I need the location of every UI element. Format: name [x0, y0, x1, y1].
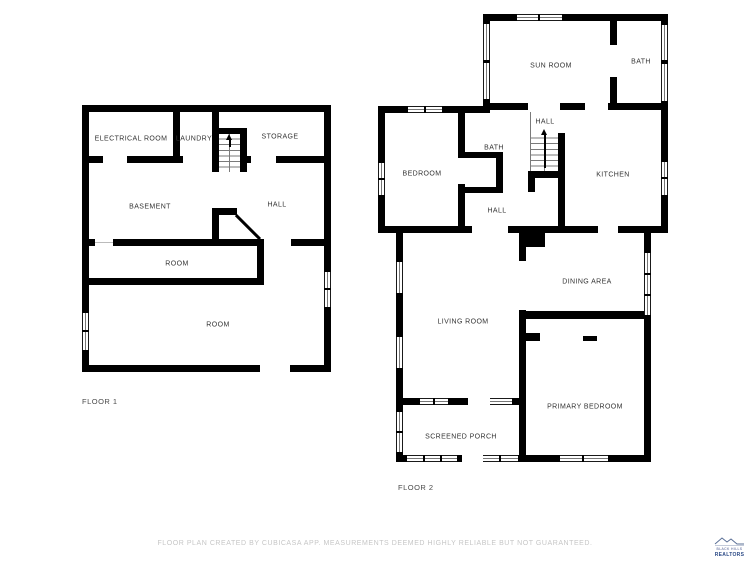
window-divider	[644, 294, 651, 296]
wall	[396, 455, 407, 462]
wall	[528, 178, 535, 192]
window-divider	[324, 288, 331, 290]
floor-2-title: FLOOR 2	[398, 483, 434, 492]
logo-line2: REALTORS	[715, 552, 745, 558]
door-leaf	[235, 214, 261, 240]
wall	[558, 133, 565, 233]
wall	[618, 226, 668, 233]
room-label-screened-porch: SCREENED PORCH	[425, 434, 497, 441]
wall	[240, 134, 247, 172]
room-label-dining-area: DINING AREA	[562, 279, 612, 286]
wall	[82, 156, 103, 163]
window-divider	[483, 60, 490, 63]
window	[396, 262, 403, 293]
window-divider	[499, 455, 501, 462]
window-divider	[423, 455, 425, 462]
room-label-hall-upper: HALL	[535, 119, 554, 126]
window-divider	[433, 398, 435, 405]
wall	[247, 156, 251, 163]
wall	[82, 278, 263, 285]
wall	[448, 398, 468, 405]
room-label-primary-bedroom: PRIMARY BEDROOM	[547, 404, 623, 411]
window-divider	[582, 455, 584, 462]
window-divider	[378, 178, 385, 180]
window-divider	[644, 273, 651, 275]
room-label-room-middle: ROOM	[165, 261, 188, 268]
window-divider	[396, 431, 403, 433]
room-label-hall-f1: HALL	[267, 202, 286, 209]
stairs-arrow-stem	[229, 139, 231, 147]
window	[407, 455, 457, 462]
room-label-kitchen: KITCHEN	[596, 172, 630, 179]
wall	[82, 365, 260, 372]
wall	[458, 106, 465, 158]
wall	[518, 455, 560, 462]
wall	[212, 105, 219, 172]
room-label-bedroom: BEDROOM	[403, 171, 442, 178]
wall	[560, 103, 585, 110]
floor-plan-page: ELECTRICAL ROOM LAUNDRY STORAGE BASEMENT…	[0, 0, 750, 563]
room-label-bath-upper: BATH	[631, 59, 651, 66]
room-label-electrical-room: ELECTRICAL ROOM	[95, 136, 168, 143]
room-label-basement: BASEMENT	[129, 204, 171, 211]
wall	[608, 455, 651, 462]
room-label-sun-room: SUN ROOM	[530, 63, 572, 70]
wall	[324, 105, 331, 372]
closet-door-marker	[583, 336, 597, 341]
wall	[512, 398, 519, 405]
window	[560, 455, 608, 462]
mountain-logo-icon: BLACK HILLS REALTORS	[711, 534, 749, 560]
window-divider	[440, 455, 442, 462]
wall	[457, 455, 462, 462]
floor-1-title: FLOOR 1	[82, 397, 118, 406]
window	[396, 337, 403, 368]
wall	[212, 208, 237, 215]
wall	[276, 156, 331, 163]
wall	[82, 239, 95, 246]
window-divider	[661, 60, 668, 64]
room-label-room-lower: ROOM	[206, 322, 229, 329]
window-divider	[424, 106, 426, 113]
window-divider	[82, 330, 89, 332]
wall	[519, 310, 526, 462]
closet-wall	[526, 333, 540, 341]
wall	[396, 398, 420, 405]
stairs-arrow-stem	[544, 134, 546, 168]
window-divider	[661, 177, 668, 179]
room-label-hall-lower: HALL	[487, 208, 506, 215]
wall	[82, 105, 331, 112]
cased-opening	[95, 239, 113, 246]
window	[644, 253, 651, 315]
wall	[291, 239, 324, 246]
wall	[173, 105, 180, 163]
window	[490, 398, 512, 405]
wall	[528, 171, 565, 178]
wall	[519, 226, 526, 261]
wall	[290, 365, 331, 372]
wall	[519, 311, 651, 319]
room-label-laundry: LAUNDRY	[176, 136, 212, 143]
wall	[610, 14, 617, 45]
disclaimer-text: FLOOR PLAN CREATED BY CUBICASA APP. MEAS…	[0, 540, 750, 547]
room-label-storage: STORAGE	[262, 134, 299, 141]
realtor-logo: BLACK HILLS REALTORS	[711, 534, 749, 560]
wall	[608, 103, 668, 110]
window-divider	[538, 14, 540, 21]
wall	[483, 14, 668, 21]
wall	[127, 156, 183, 163]
wall	[113, 239, 263, 246]
wall	[458, 187, 503, 193]
room-label-bath: BATH	[484, 145, 504, 152]
logo-line1: BLACK HILLS	[717, 547, 743, 551]
room-label-living-room: LIVING ROOM	[437, 319, 488, 326]
